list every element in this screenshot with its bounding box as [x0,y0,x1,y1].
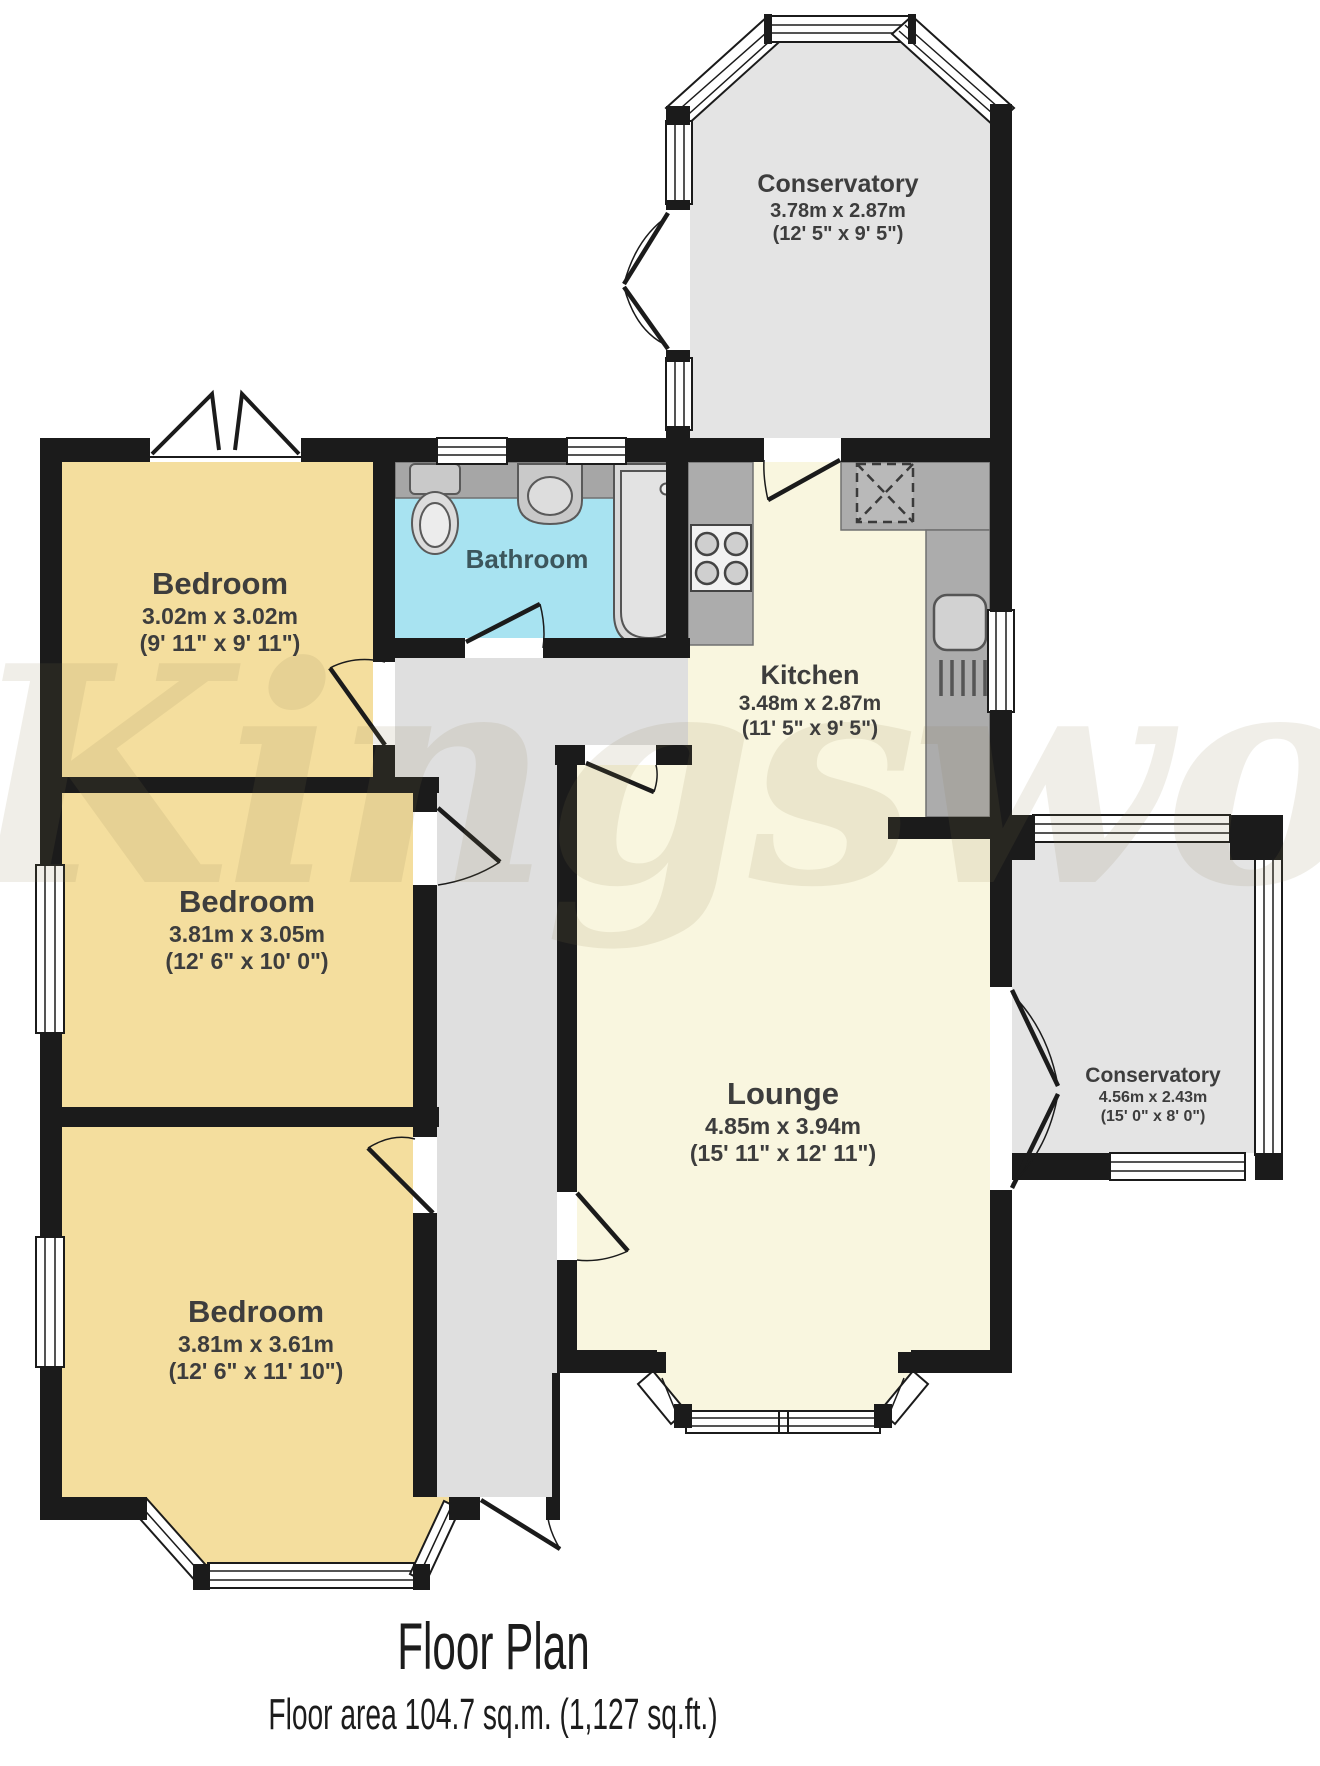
room-dims-metric: 3.81m x 3.05m [165,921,328,948]
room-label-bedroom-middle: Bedroom 3.81m x 3.05m (12' 6" x 10' 0") [165,884,328,975]
room-name: Conservatory [757,170,918,200]
footer: Floor Plan Floor area 104.7 sq.m. (1,127… [142,1608,844,1740]
hob-icon [691,525,751,591]
room-label-lounge: Lounge 4.85m x 3.94m (15' 11" x 12' 11") [690,1076,876,1167]
window [36,865,64,1033]
room-name: Kitchen [739,660,881,692]
room-dims-imperial: (12' 5" x 9' 5") [757,223,918,247]
plan-title: Floor Plan [397,1608,590,1684]
room-dims-metric: 4.56m x 2.43m [1085,1089,1220,1108]
room-dims-imperial: (12' 6" x 11' 10") [169,1358,344,1385]
window [437,438,507,464]
room-name: Bedroom [140,566,301,603]
room-dims-imperial: (15' 0" x 8' 0") [1085,1108,1220,1127]
room-dims-metric: 3.48m x 2.87m [739,692,881,717]
toilet-icon [410,464,460,554]
room-name: Conservatory [1085,1064,1220,1089]
floor-area-text: Floor area 104.7 sq.m. (1,127 sq.ft.) [268,1690,717,1740]
floor-plan-page: Kingswood Conservatory 3.78m x 2.87m (12… [0,0,1320,1766]
room-dims-imperial: (9' 11" x 9' 11") [140,630,301,657]
basin-icon [518,464,582,524]
room-label-bathroom: Bathroom [466,544,589,575]
room-dims-imperial: (15' 11" x 12' 11") [690,1140,876,1167]
room-name: Bedroom [169,1294,344,1331]
room-label-kitchen: Kitchen 3.48m x 2.87m (11' 5" x 9' 5") [739,660,881,741]
room-label-bedroom-top: Bedroom 3.02m x 3.02m (9' 11" x 9' 11") [140,566,301,657]
kitchen-counter-right [926,530,990,817]
window [567,438,626,464]
window [988,610,1014,712]
room-dims-metric: 3.81m x 3.61m [169,1331,344,1358]
room-label-conservatory-top: Conservatory 3.78m x 2.87m (12' 5" x 9' … [757,170,918,247]
room-name: Lounge [690,1076,876,1113]
room-dims-imperial: (11' 5" x 9' 5") [739,717,881,742]
french-doors [624,213,668,349]
floor-plan-drawing [0,0,1320,1766]
room-name: Bathroom [466,544,589,575]
room-name: Bedroom [165,884,328,921]
room-dims-metric: 3.78m x 2.87m [757,200,918,224]
window [36,1237,64,1367]
room-dims-imperial: (12' 6" x 10' 0") [165,948,328,975]
casement-window [150,394,301,460]
room-dims-metric: 3.02m x 3.02m [140,603,301,630]
storage-hatch-icon [857,464,913,522]
room-label-conservatory-right: Conservatory 4.56m x 2.43m (15' 0" x 8' … [1085,1064,1220,1127]
room-dims-metric: 4.85m x 3.94m [690,1113,876,1140]
room-label-bedroom-bottom: Bedroom 3.81m x 3.61m (12' 6" x 11' 10") [169,1294,344,1385]
